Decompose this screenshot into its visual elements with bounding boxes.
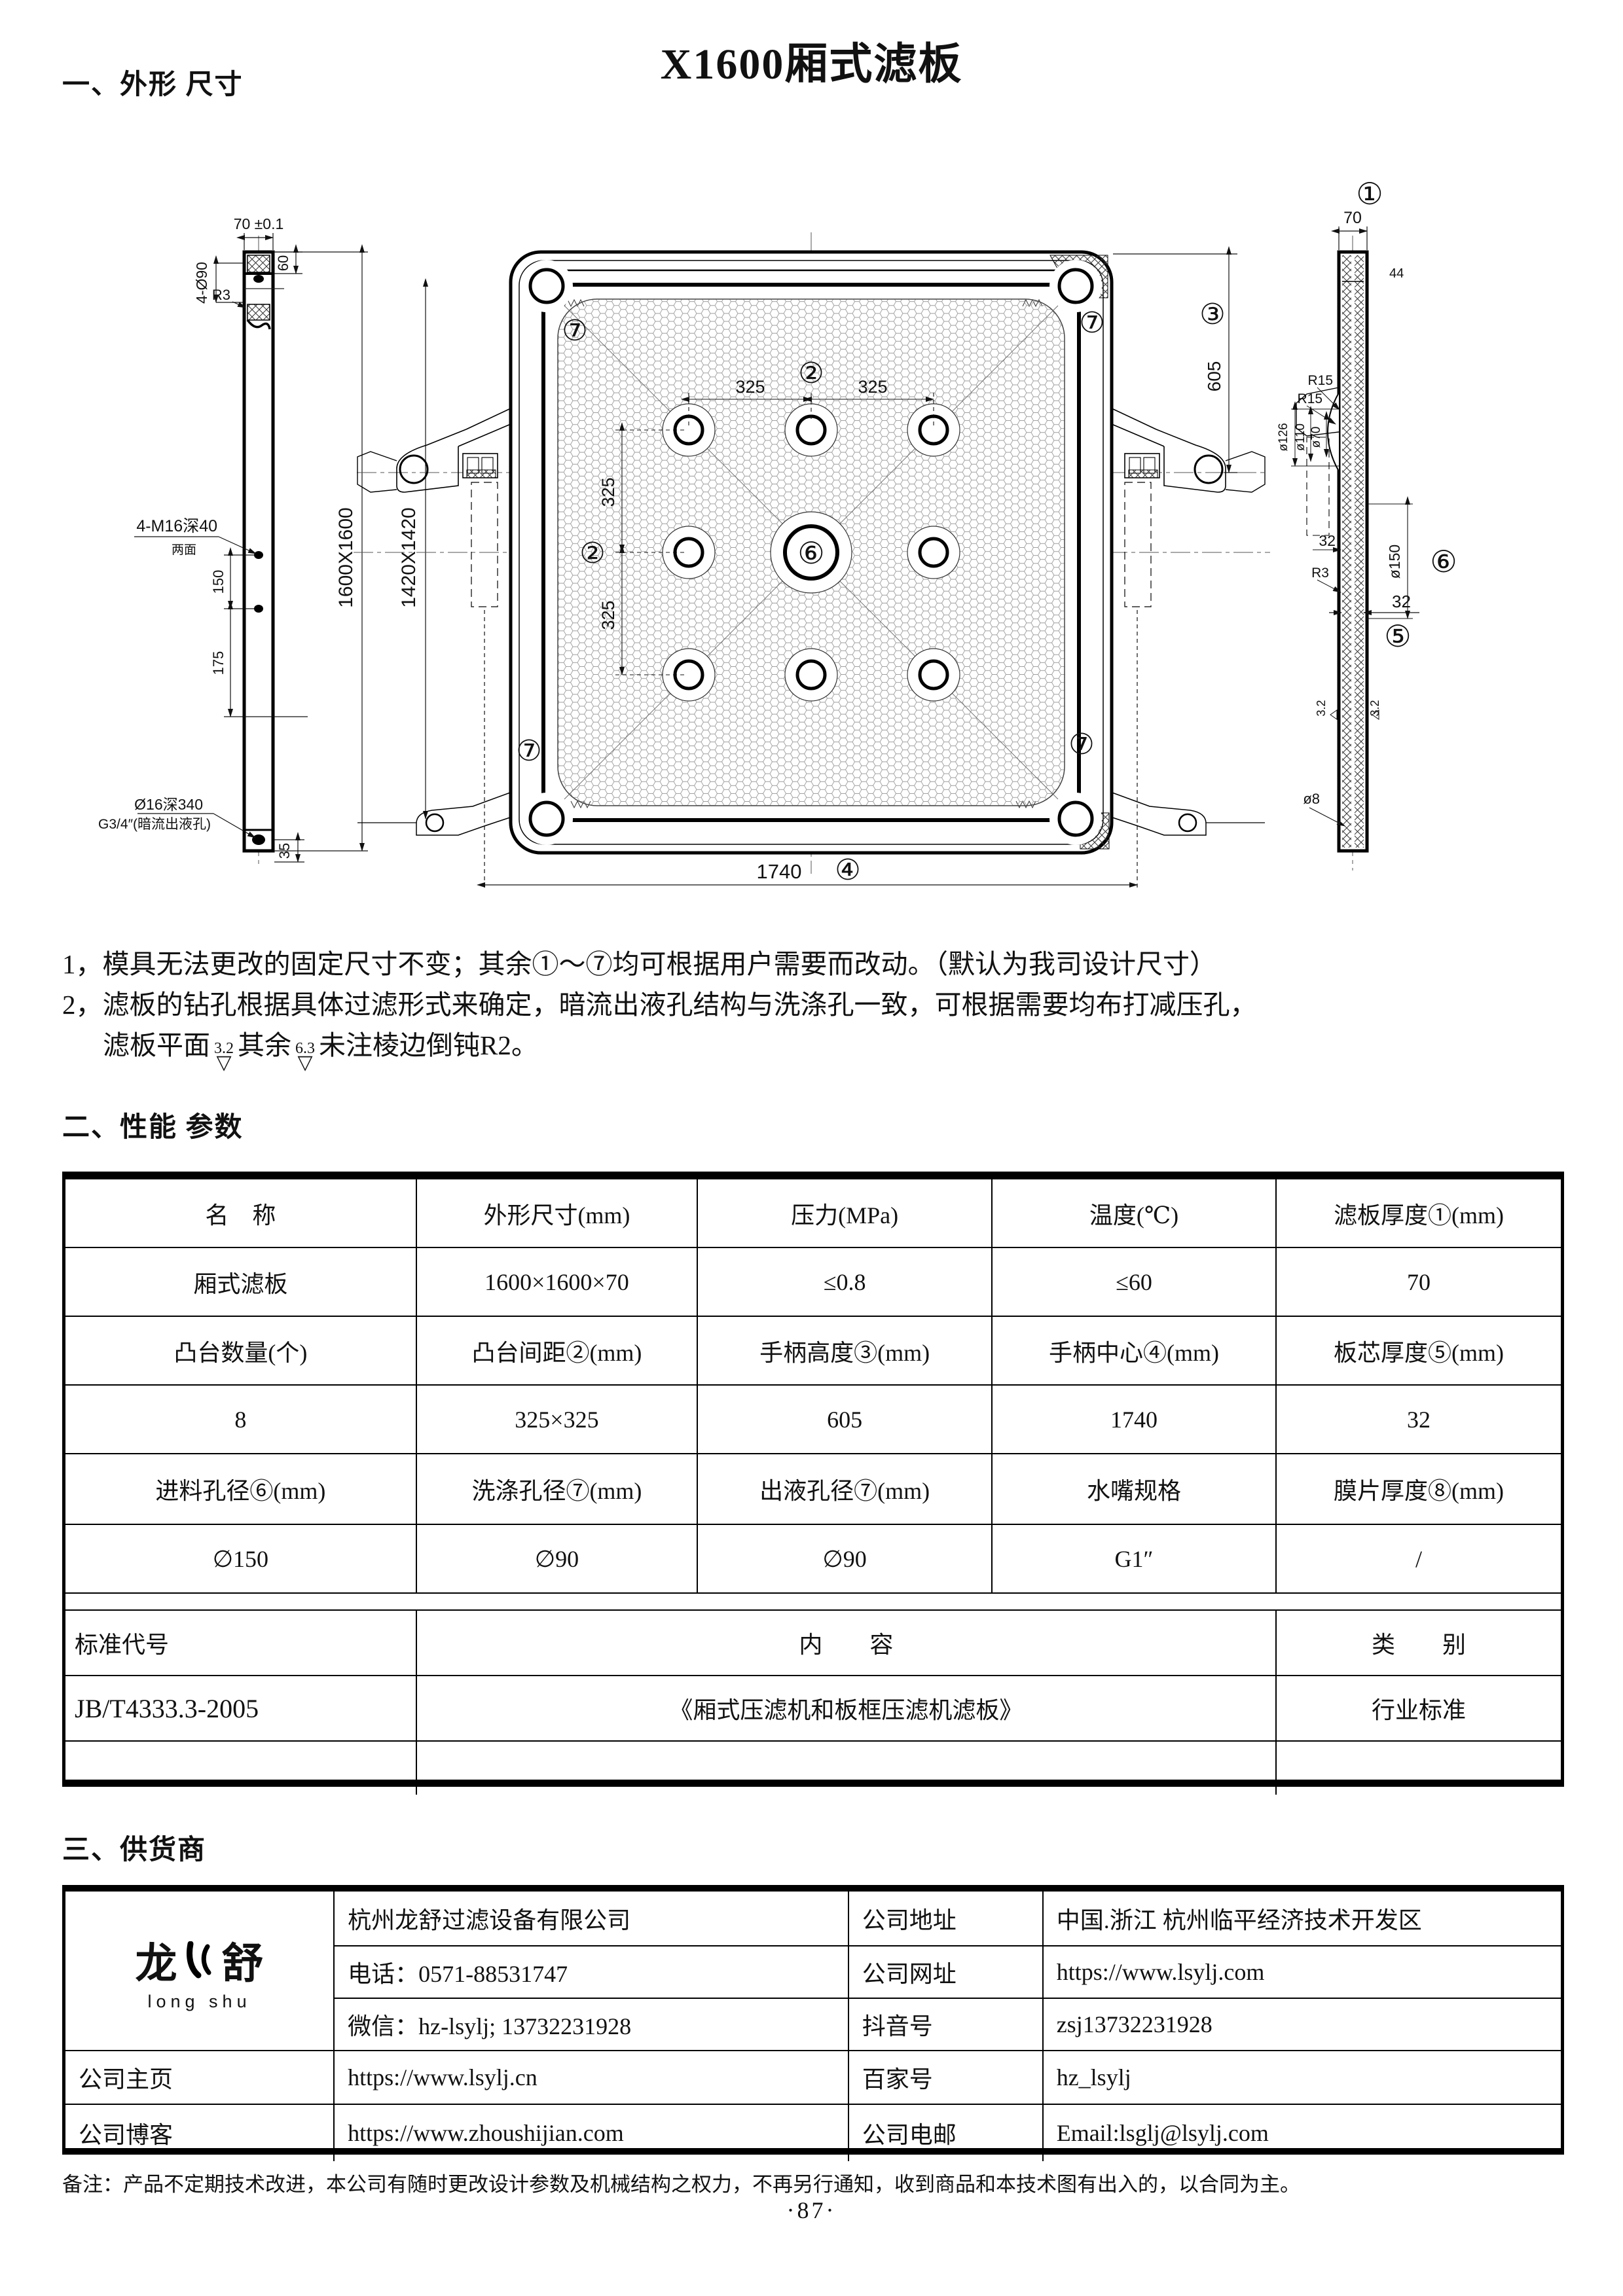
wechat-value: 微信：hz-lsylj; 13732231928	[335, 1999, 849, 2051]
label-m16-note: 两面	[172, 543, 196, 557]
logo-char-left: 龙	[136, 1930, 177, 1990]
right-side-view: ① 70 44 R15 R15 ø126 ø110 ø70	[1277, 177, 1457, 870]
table-header: 手柄中心④(mm)	[993, 1317, 1277, 1386]
finish-triangle-icon: ▽	[297, 1056, 312, 1069]
balloon-7-tr: ⑦	[1079, 307, 1104, 339]
balloon-2-left: ②	[579, 537, 605, 569]
table-cell: 70	[1277, 1248, 1561, 1317]
table-cell: 325×325	[417, 1386, 698, 1454]
table-header: 出液孔径⑦(mm)	[698, 1454, 993, 1525]
table-header: 膜片厚度⑧(mm)	[1277, 1454, 1561, 1525]
homepage-label: 公司主页	[65, 2051, 335, 2105]
baijia-label: 百家号	[849, 2051, 1044, 2105]
dim-1740: 1740	[757, 860, 802, 883]
table-cell: 厢式滤板	[65, 1248, 417, 1317]
table-empty-cell	[417, 1742, 1277, 1795]
logo-char-right: 舒	[222, 1930, 264, 1990]
label-d8: ø8	[1303, 791, 1320, 807]
dim-605: 605	[1204, 361, 1224, 392]
balloon-6-right: ⑥	[1430, 545, 1457, 579]
surface-finish-6-3: 6.3 ▽	[295, 1041, 315, 1069]
note-line-2: 2，滤板的钻孔根据具体过滤形式来确定，暗流出液孔结构与洗涤孔一致，可根据需要均布…	[62, 984, 1581, 1025]
balloon-7-bl: ⑦	[516, 735, 541, 767]
note-3-mid: 其余	[238, 1025, 291, 1066]
dim-44: 44	[1389, 266, 1404, 281]
balloon-6-feed: ⑥	[797, 536, 824, 570]
note-3-prefix: 滤板平面	[103, 1025, 210, 1066]
standard-content: 《厢式压滤机和板框压滤机滤板》	[417, 1676, 1277, 1742]
label-r3-left: R3	[212, 287, 230, 303]
dim-32-core: 32	[1319, 532, 1336, 549]
logo-swoosh-icon	[179, 1941, 221, 1979]
table-header: 手柄高度③(mm)	[698, 1317, 993, 1386]
phone-value: 电话：0571-88531747	[335, 1946, 849, 1999]
table-header: 温度(℃)	[993, 1179, 1277, 1248]
balloon-5: ⑤	[1384, 619, 1411, 653]
finish-triangle-icon: ▽	[216, 1056, 231, 1069]
table-spacer-row	[65, 1594, 1561, 1611]
notes-block: 1，模具无法更改的固定尺寸不变；其余①～⑦均可根据用户需要而改动。（默认为我司设…	[62, 944, 1581, 1066]
dim-d126: ø126	[1277, 423, 1290, 451]
table-header: 凸台数量(个)	[65, 1317, 417, 1386]
balloon-1: ①	[1356, 177, 1383, 211]
dim-70-tol: 70 ±0.1	[234, 215, 284, 232]
logo-pinyin: long shu	[148, 1992, 251, 2012]
front-view: ⑦ ⑦ ⑦ ⑦ ⑥	[354, 232, 1270, 890]
table-cell: ∅150	[65, 1525, 417, 1594]
footer-note: 备注：产品不定期技术改进，本公司有随时更改设计参数及机械结构之权力，不再另行通知…	[62, 2168, 1568, 2197]
note-3-suffix: 未注棱边倒钝R2。	[319, 1025, 538, 1066]
performance-table: 名 称 外形尺寸(mm) 压力(MPa) 温度(℃) 滤板厚度①(mm) 厢式滤…	[62, 1172, 1564, 1787]
balloon-7-tl: ⑦	[562, 315, 587, 347]
finish-3-2-right: 3.2	[1368, 700, 1381, 716]
note-line-1: 1，模具无法更改的固定尺寸不变；其余①～⑦均可根据用户需要而改动。（默认为我司设…	[62, 944, 1581, 984]
balloon-7-br: ⑦	[1068, 728, 1094, 761]
table-header: 压力(MPa)	[698, 1179, 993, 1248]
address-label: 公司地址	[849, 1892, 1044, 1946]
section-heading-performance: 二、性能 参数	[62, 1105, 244, 1145]
dim-325-left-upper: 325	[598, 477, 618, 507]
overall-dimensions: 1600X1600 1420X1420	[274, 252, 426, 851]
dim-d150: ø150	[1386, 545, 1403, 579]
dim-325-top-right: 325	[858, 377, 887, 397]
address-value: 中国.浙江 杭州临平经济技术开发区	[1044, 1892, 1561, 1946]
table-cell: 32	[1277, 1386, 1561, 1454]
dim-70-right: 70	[1343, 209, 1362, 227]
balloon-3: ③	[1199, 298, 1225, 331]
note-line-3: 滤板平面 3.2 ▽ 其余 6.3 ▽ 未注棱边倒钝R2。	[62, 1025, 1581, 1066]
table-cell: ∅90	[417, 1525, 698, 1594]
table-header: 外形尺寸(mm)	[417, 1179, 698, 1248]
table-cell: ≤60	[993, 1248, 1277, 1317]
douyin-label: 抖音号	[849, 1999, 1044, 2051]
table-cell: /	[1277, 1525, 1561, 1594]
dim-60: 60	[275, 255, 291, 271]
table-empty-cell	[65, 1742, 417, 1795]
supplier-table: 龙 舒 long shu 杭州龙舒过滤设备有限公司 公司地址 中国.浙江 杭州临…	[62, 1885, 1564, 2155]
dim-32-balloon5: 32	[1392, 592, 1411, 611]
standard-content-header: 内 容	[417, 1611, 1277, 1676]
dim-150: 150	[210, 570, 227, 594]
table-cell: ≤0.8	[698, 1248, 993, 1317]
label-4-d90: 4-Ø90	[193, 262, 210, 304]
table-header: 进料孔径⑥(mm)	[65, 1454, 417, 1525]
dim-d110: ø110	[1294, 423, 1307, 451]
page-number: ·87·	[0, 2197, 1623, 2224]
table-cell: 605	[698, 1386, 993, 1454]
email-label: 公司电邮	[849, 2105, 1044, 2161]
douyin-value: zsj13732231928	[1044, 1999, 1561, 2051]
standard-code-header: 标准代号	[65, 1611, 417, 1676]
table-header: 凸台间距②(mm)	[417, 1317, 698, 1386]
company-name: 杭州龙舒过滤设备有限公司	[335, 1892, 849, 1946]
dim-1600x1600: 1600X1600	[335, 507, 357, 608]
label-r15-a: R15	[1307, 373, 1333, 388]
technical-drawing: 70 ±0.1 60 4-Ø90 R3 4-M16深40 两面	[0, 0, 1623, 942]
label-r3-right: R3	[1311, 565, 1329, 581]
table-header: 洗涤孔径⑦(mm)	[417, 1454, 698, 1525]
table-cell: 1740	[993, 1386, 1277, 1454]
dim-175: 175	[210, 651, 227, 675]
company-logo: 龙 舒 long shu	[65, 1892, 335, 2051]
surface-finish-3-2: 3.2 ▽	[214, 1041, 234, 1069]
table-header: 名 称	[65, 1179, 417, 1248]
blog-value: https://www.zhoushijian.com	[335, 2105, 849, 2161]
website-value: https://www.lsylj.com	[1044, 1946, 1561, 1999]
standard-code: JB/T4333.3-2005	[65, 1676, 417, 1742]
table-cell: ∅90	[698, 1525, 993, 1594]
homepage-value: https://www.lsylj.cn	[335, 2051, 849, 2105]
standard-class: 行业标准	[1277, 1676, 1561, 1742]
table-header: 板芯厚度⑤(mm)	[1277, 1317, 1561, 1386]
table-cell: 8	[65, 1386, 417, 1454]
email-value: Email:lsglj@lsylj.com	[1044, 2105, 1561, 2161]
dim-1420x1420: 1420X1420	[398, 507, 420, 608]
dim-325-top-left: 325	[735, 377, 765, 397]
finish-3-2-left: 3.2	[1315, 700, 1328, 716]
table-cell: 1600×1600×70	[417, 1248, 698, 1317]
left-handle	[357, 408, 511, 607]
label-outlet-thread: G3/4″(暗流出液孔)	[98, 817, 211, 832]
section-heading-supplier: 三、供货商	[62, 1827, 206, 1867]
label-outlet-size: Ø16深340	[134, 796, 203, 813]
table-empty-cell	[1277, 1742, 1561, 1795]
website-label: 公司网址	[849, 1946, 1044, 1999]
right-handle	[1112, 408, 1265, 607]
standard-class-header: 类 别	[1277, 1611, 1561, 1676]
table-header: 水嘴规格	[993, 1454, 1277, 1525]
left-side-view: 70 ±0.1 60 4-Ø90 R3 4-M16深40 两面	[98, 215, 308, 867]
blog-label: 公司博客	[65, 2105, 335, 2161]
label-m16: 4-M16深40	[136, 517, 217, 535]
baijia-value: hz_lsylj	[1044, 2051, 1561, 2105]
balloon-4: ④	[835, 854, 860, 886]
datasheet-page: X1600厢式滤板 一、外形 尺寸	[0, 0, 1623, 2296]
balloon-2-top: ②	[798, 357, 824, 389]
dim-325-left-lower: 325	[598, 600, 618, 630]
table-header: 滤板厚度①(mm)	[1277, 1179, 1561, 1248]
table-cell: G1″	[993, 1525, 1277, 1594]
